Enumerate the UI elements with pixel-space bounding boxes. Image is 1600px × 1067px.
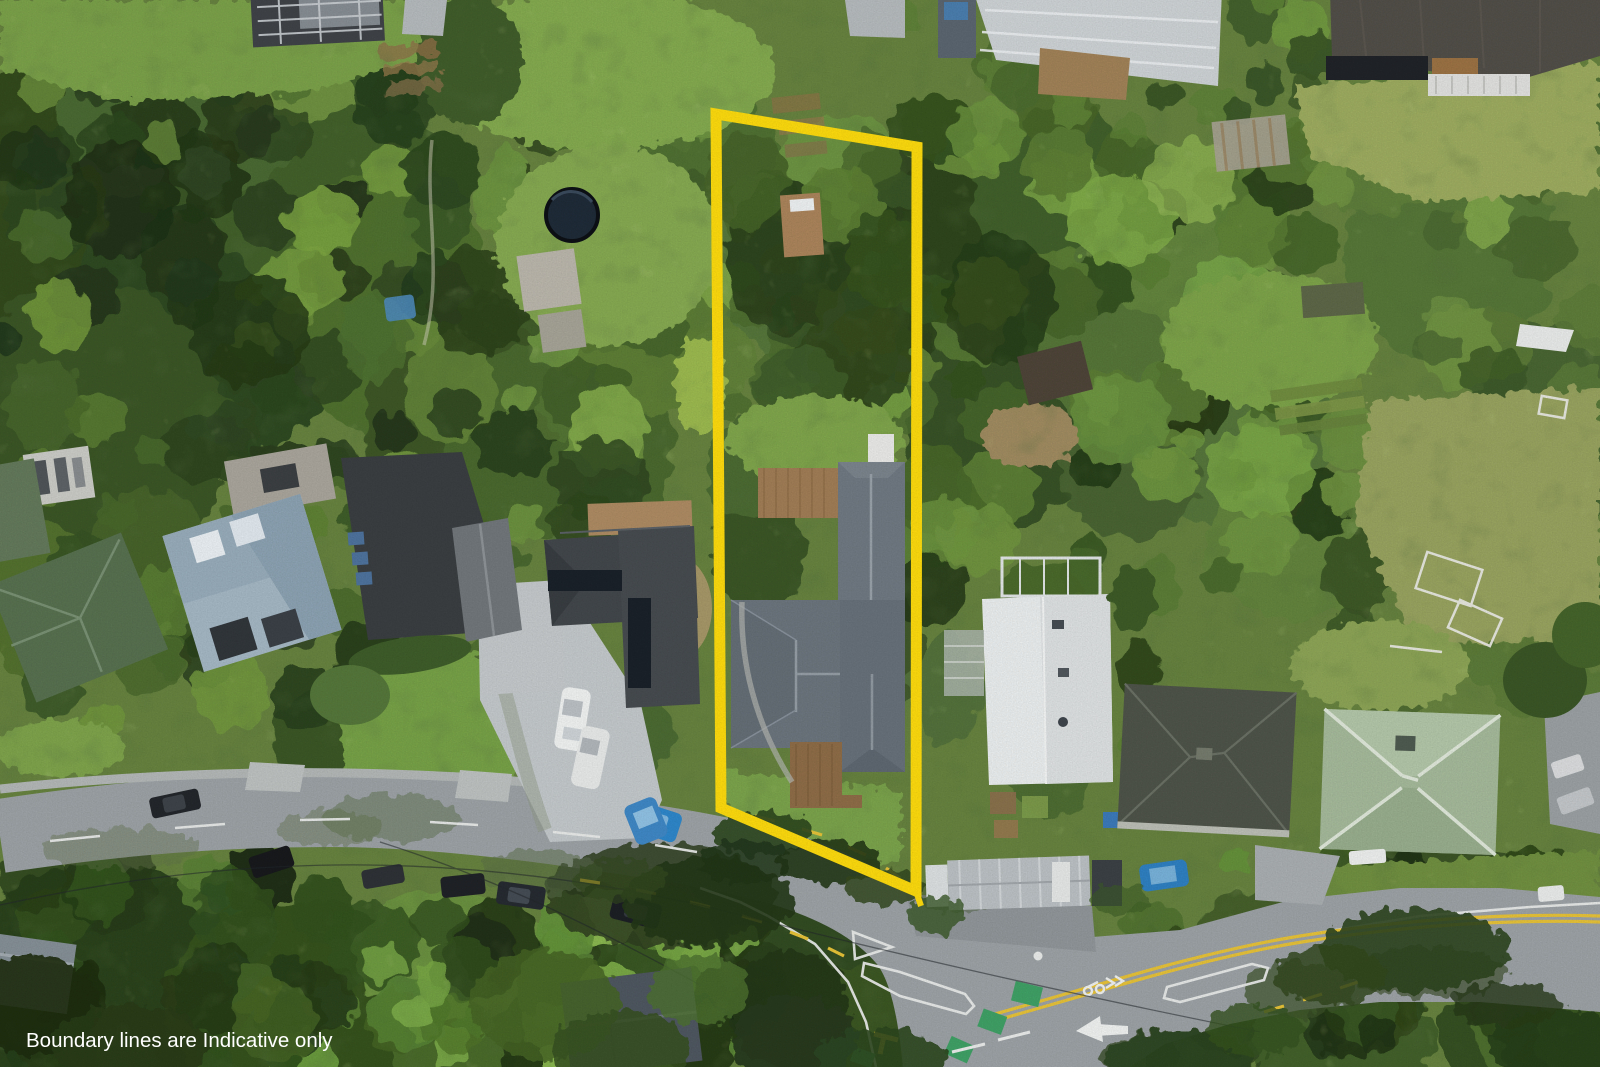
svg-text:Boundary lines are Indicative: Boundary lines are Indicative only bbox=[26, 1029, 333, 1052]
